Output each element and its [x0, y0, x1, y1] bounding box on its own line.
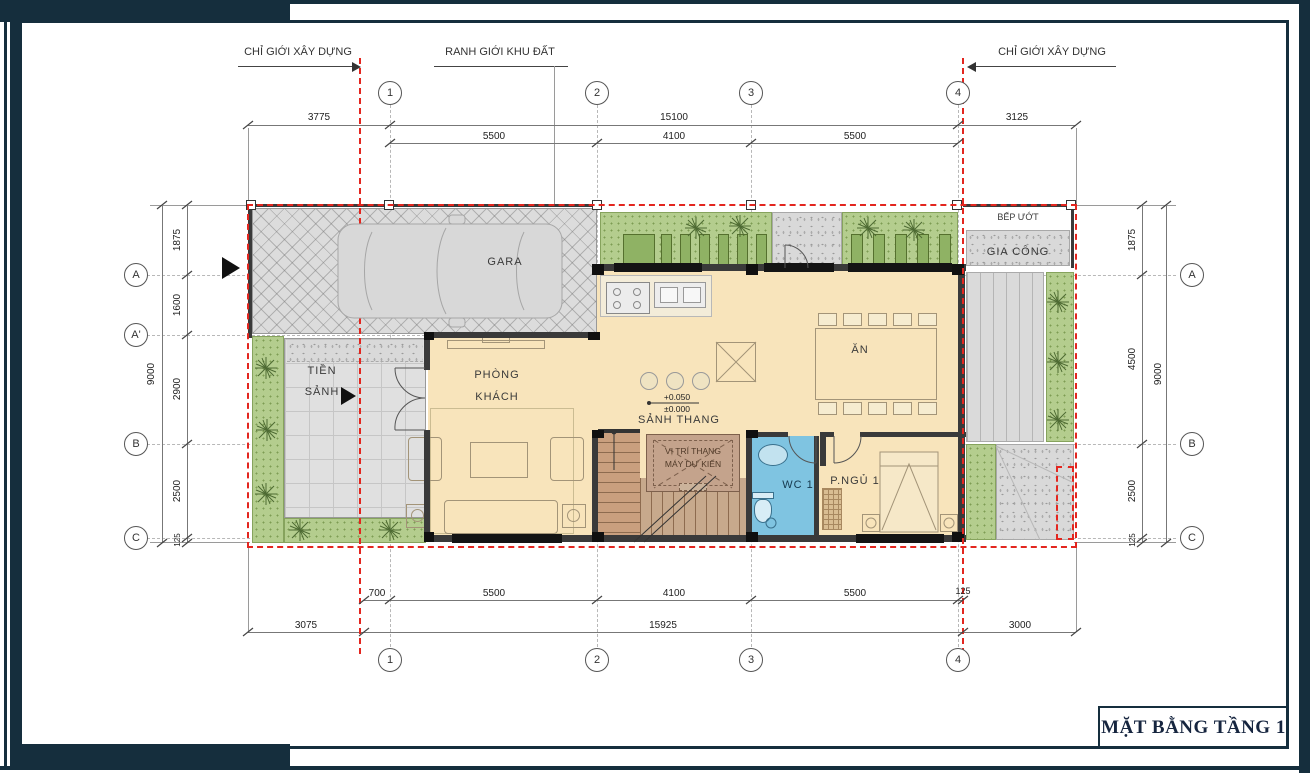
boundary-detail-outline	[1056, 466, 1074, 540]
room-label-sanh-thang: SẢNH THANG	[624, 414, 734, 426]
ext-line	[1076, 128, 1077, 205]
corner-bar-bottom	[10, 744, 290, 766]
grid-bubble-3-bottom: 3	[739, 648, 763, 672]
dim-label: 1600	[147, 295, 207, 315]
outer-frame-bottom	[0, 766, 1310, 770]
drawing-title-box: MẶT BẰNG TẦNG 1	[1098, 706, 1289, 749]
dim-label: 3075	[256, 620, 356, 631]
room-label-phong-khach: PHÒNG	[457, 369, 537, 381]
entrance-arrow-lobby-icon	[341, 387, 356, 405]
dim-label: 4100	[624, 131, 724, 142]
building-line-label-left: CHỈ GIỚI XÂY DỰNG	[218, 46, 378, 58]
building-line-label-right: CHỈ GIỚI XÂY DỰNG	[972, 46, 1132, 58]
room-label-p-ngu1: P.NGỦ 1	[818, 475, 892, 487]
dim-label: 1875	[147, 230, 207, 250]
dim-label: 9000	[1128, 364, 1188, 384]
dim-label: 125	[943, 586, 983, 596]
grid-bubble-4-bottom: 4	[946, 648, 970, 672]
grid-bubble-1-bottom: 1	[378, 648, 402, 672]
land-boundary-leader	[434, 66, 568, 67]
building-setback-line-left	[359, 58, 361, 654]
land-boundary-dropline	[554, 66, 555, 205]
grid-bubble-C: C	[124, 526, 148, 550]
dim-label: 5500	[444, 588, 544, 599]
ext-line	[150, 205, 250, 206]
elevator-note: MÁY DỰ KIẾN	[648, 459, 738, 469]
outer-frame-right	[1299, 0, 1310, 773]
ext-line	[1076, 545, 1077, 632]
outer-frame-left	[4, 20, 7, 768]
dim-label: 125	[147, 530, 207, 550]
grid-bubble-2-bottom: 2	[585, 648, 609, 672]
dim-label: 3775	[269, 112, 369, 123]
corner-bar-top	[0, 0, 290, 22]
dim-line-top1	[248, 125, 1076, 126]
ext-line	[1074, 205, 1176, 206]
drawing-sheet: MẶT BẰNG TẦNG 1 CHỈ GIỚI XÂY DỰNG RANH G…	[0, 0, 1310, 773]
dim-label: 2500	[1102, 481, 1162, 501]
elevator-note: VỊ TRÍ THANG	[648, 446, 738, 456]
dim-label: 1875	[1102, 230, 1162, 250]
grid-bubble-C-right: C	[1180, 526, 1204, 550]
dim-label: 5500	[805, 588, 905, 599]
dim-label: 4100	[624, 588, 724, 599]
room-label-phong-khach: KHÁCH	[457, 391, 537, 403]
dim-label: 2500	[147, 481, 207, 501]
dim-line-bottom2	[248, 632, 1076, 633]
level-upper: +0.050	[655, 392, 699, 402]
grid-bubble-3: 3	[739, 81, 763, 105]
dim-label: 9000	[121, 364, 181, 384]
building-line-leader-right	[976, 66, 1116, 67]
grid-bubble-A-right: A	[1180, 263, 1204, 287]
dim-line-bottom1	[364, 600, 963, 601]
grid-bubble-4: 4	[946, 81, 970, 105]
dim-label: 15925	[613, 620, 713, 631]
dim-line-top2	[390, 143, 958, 144]
building-line-leader-left	[238, 66, 354, 67]
corner-bar-left	[10, 20, 22, 748]
entrance-arrow-gara-icon	[222, 257, 240, 279]
grid-bubble-2: 2	[585, 81, 609, 105]
level-lower: ±0.000	[655, 404, 699, 414]
building-setback-line-right	[962, 58, 964, 654]
dim-label: 3125	[967, 112, 1067, 123]
room-label-gia-cong: GIA CÔNG	[966, 246, 1070, 258]
land-boundary-label: RANH GIỚI KHU ĐẤT	[420, 46, 580, 58]
dim-label: 700	[347, 588, 407, 599]
grid-bubble-1: 1	[378, 81, 402, 105]
drawing-title: MẶT BẰNG TẦNG 1	[1101, 717, 1286, 739]
dim-label: 5500	[444, 131, 544, 142]
room-label-wc1: WC 1	[776, 479, 820, 491]
room-label-bep-uot: BẾP ƯỚT	[978, 212, 1058, 222]
dim-label: 5500	[805, 131, 905, 142]
room-label-tien-sanh: TIỀN	[292, 365, 352, 377]
dim-label: 3000	[970, 620, 1070, 631]
dim-label: 125	[1102, 530, 1162, 550]
grid-bubble-A: A	[124, 263, 148, 287]
grid-bubble-B-right: B	[1180, 432, 1204, 456]
room-label-gara: GARA	[470, 256, 540, 268]
ext-line	[248, 545, 249, 632]
grid-bubble-A-prime: A'	[124, 323, 148, 347]
dim-label: 15100	[624, 112, 724, 123]
land-boundary-outline	[247, 204, 1077, 548]
room-label-an: ĂN	[835, 344, 885, 356]
ext-line	[248, 128, 249, 205]
outer-frame-top	[288, 0, 1310, 4]
arrowhead-left-icon	[967, 62, 976, 72]
grid-bubble-B: B	[124, 432, 148, 456]
